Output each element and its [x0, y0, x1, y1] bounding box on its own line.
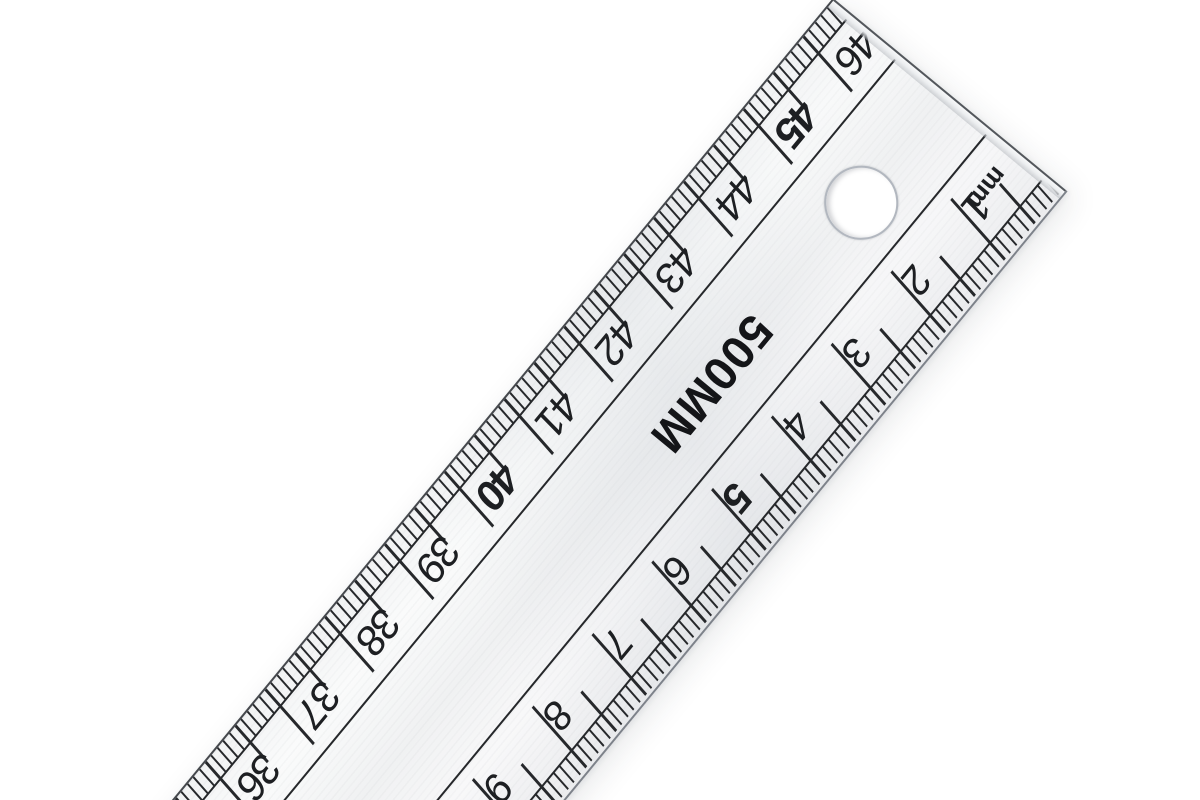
ruler: 4645444342414039383736123456789 500MM mm — [0, 0, 1068, 800]
photo-stage: 4645444342414039383736123456789 500MM mm — [0, 0, 1200, 800]
